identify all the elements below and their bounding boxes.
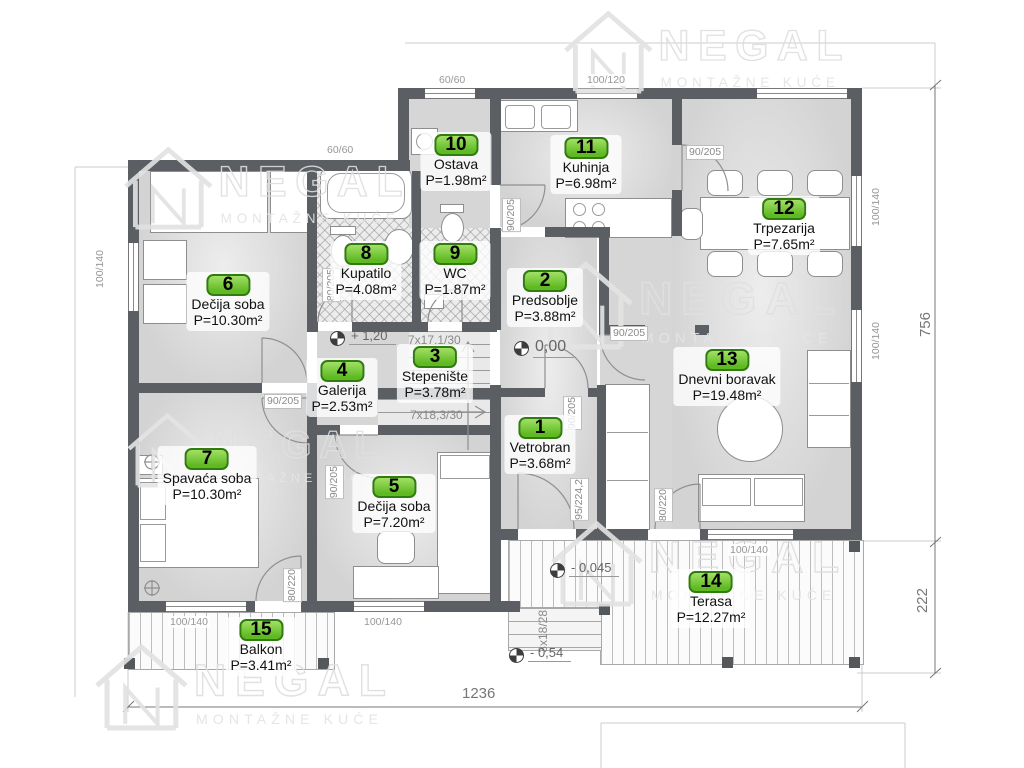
room-badge: 9 bbox=[433, 243, 477, 265]
room-area: P=12.27m² bbox=[677, 609, 746, 625]
room-badge: 1 bbox=[518, 417, 562, 439]
room-tag-predsoblje: 2 Predsoblje P=3.88m² bbox=[507, 268, 583, 327]
room-area: P=3.68m² bbox=[509, 455, 570, 471]
sink-basin bbox=[505, 105, 535, 129]
deck-post bbox=[849, 541, 860, 552]
window bbox=[128, 243, 139, 311]
closet-shelf bbox=[607, 432, 648, 433]
watermark-tagline: MONTAŽNE KUĆE bbox=[196, 711, 383, 727]
door-size-label: 90/205 bbox=[610, 326, 648, 341]
room-area: P=7.65m² bbox=[753, 236, 815, 252]
stove-burner bbox=[592, 203, 605, 216]
wardrobe bbox=[270, 171, 310, 233]
level-value: - 0,045 bbox=[569, 560, 619, 577]
room-tag-kuhinja: 11 Kuhinja P=6.98m² bbox=[550, 135, 621, 194]
door-size-label: 90/205 bbox=[325, 465, 344, 499]
level-value: - 0,54 bbox=[528, 645, 571, 662]
kitchen-sink-counter bbox=[498, 100, 578, 132]
level-symbol-icon bbox=[509, 648, 524, 663]
room-name: Galerija bbox=[311, 382, 372, 398]
room-area: P=3.78m² bbox=[402, 384, 468, 400]
tv-cabinet bbox=[807, 350, 851, 448]
dining-chair bbox=[707, 170, 743, 196]
room-tag-dnevni-boravak: 13 Dnevni boravak P=19.48m² bbox=[673, 347, 780, 406]
room-name: Predsoblje bbox=[512, 292, 578, 308]
wall bbox=[462, 322, 497, 332]
toilet bbox=[440, 204, 464, 213]
level-symbol-icon bbox=[514, 341, 529, 356]
window bbox=[757, 88, 847, 99]
wall bbox=[599, 235, 609, 330]
room-badge: 10 bbox=[434, 134, 478, 156]
window-size-label: 100/140 bbox=[868, 188, 884, 226]
sofa bbox=[698, 474, 805, 522]
room-name: Terasa bbox=[677, 593, 746, 609]
room-badge: 11 bbox=[564, 137, 608, 159]
pillow bbox=[440, 455, 490, 479]
window bbox=[577, 88, 637, 99]
level-symbol-icon bbox=[330, 331, 345, 346]
window bbox=[354, 601, 424, 612]
window-size-label: 100/140 bbox=[362, 616, 404, 628]
bed bbox=[437, 452, 493, 594]
room-badge: 14 bbox=[689, 571, 733, 593]
level-value: 0,00 bbox=[533, 338, 574, 358]
wall bbox=[600, 529, 648, 540]
dining-chair bbox=[680, 208, 703, 240]
room-name: Kuhinja bbox=[555, 159, 616, 175]
window bbox=[851, 310, 862, 382]
room-tag-terasa: 14 Terasa P=12.27m² bbox=[672, 569, 751, 628]
window bbox=[425, 88, 475, 99]
room-name: Kupatilo bbox=[335, 265, 396, 281]
tv-cabinet-shelf bbox=[809, 383, 849, 384]
room-tag-galerija: 4 Galerija P=2.53m² bbox=[306, 358, 377, 417]
closet bbox=[605, 384, 650, 530]
wall bbox=[490, 228, 501, 330]
dining-chair bbox=[757, 170, 793, 196]
room-badge: 6 bbox=[206, 274, 250, 296]
room-badge: 4 bbox=[320, 360, 364, 382]
wall bbox=[317, 425, 340, 435]
wall bbox=[695, 325, 709, 335]
room-name: Spavaća soba bbox=[163, 470, 252, 486]
wall bbox=[597, 385, 606, 540]
level-marker-terrace: - 0,045 bbox=[550, 560, 619, 578]
sink-basin bbox=[541, 105, 571, 129]
closet-shelf bbox=[607, 480, 648, 481]
cabinet bbox=[143, 284, 187, 324]
room-name: Trpezarija bbox=[753, 220, 815, 236]
door-size-label: 90/205 bbox=[686, 145, 724, 160]
room-name: Dečija soba bbox=[357, 498, 430, 514]
sofa-cushion bbox=[754, 478, 803, 506]
dimension-label-side: 756 bbox=[917, 312, 934, 337]
room-tag-spavaca-soba: 7 Spavaća soba P=10.30m² bbox=[158, 446, 257, 505]
room-badge: 3 bbox=[413, 346, 457, 368]
deck-post bbox=[124, 658, 135, 669]
desk bbox=[353, 566, 439, 599]
wall bbox=[490, 88, 501, 185]
window bbox=[708, 529, 793, 540]
window-size-label: 100/140 bbox=[92, 250, 108, 288]
room-area: P=1.87m² bbox=[424, 281, 485, 297]
room-area: P=2.53m² bbox=[311, 398, 372, 414]
wall bbox=[500, 388, 545, 397]
floor-plan-canvas: NEGAL MONTAŽNE KUĆE NEGAL MONTAŽNE KUĆE … bbox=[0, 0, 1024, 768]
room-name: Dečija soba bbox=[191, 296, 264, 312]
tv-cabinet-shelf bbox=[809, 415, 849, 416]
wall bbox=[128, 383, 262, 393]
window-size-label: 100/140 bbox=[868, 322, 884, 360]
room-tag-balkon: 15 Balkon P=3.41m² bbox=[225, 617, 296, 676]
window-size-label: 100/120 bbox=[585, 74, 627, 86]
wall bbox=[490, 385, 501, 612]
dining-chair bbox=[807, 170, 843, 196]
level-marker-upper: + 1,20 bbox=[330, 328, 396, 346]
room-tag-stepeniste: 3 Stepenište P=3.78m² bbox=[397, 344, 473, 403]
room-name: Balkon bbox=[230, 641, 291, 657]
door-size-label: 90/205 bbox=[502, 198, 521, 232]
room-area: P=10.30m² bbox=[163, 486, 252, 502]
deck-post bbox=[318, 658, 329, 669]
level-marker-yard: - 0,54 bbox=[509, 645, 571, 663]
room-area: P=1.98m² bbox=[425, 172, 486, 188]
wall bbox=[307, 160, 317, 331]
room-area: P=10.30m² bbox=[191, 312, 264, 328]
deck-post bbox=[849, 657, 860, 668]
room-name: Ostava bbox=[425, 156, 486, 172]
window-size-label: 60/60 bbox=[325, 144, 355, 156]
room-badge: 5 bbox=[372, 476, 416, 498]
wall bbox=[307, 322, 318, 332]
door-size-label: 80/220 bbox=[283, 568, 302, 602]
room-tag-vetrobran: 1 Vetrobran P=3.68m² bbox=[504, 415, 575, 474]
chair bbox=[377, 531, 415, 564]
bed bbox=[150, 171, 268, 233]
room-name: Vetrobran bbox=[509, 439, 570, 455]
room-tag-decija-soba-5: 5 Dečija soba P=7.20m² bbox=[352, 474, 435, 533]
wall bbox=[672, 99, 682, 145]
room-name: Stepenište bbox=[402, 368, 468, 384]
room-badge: 13 bbox=[705, 349, 749, 371]
level-marker-ground: 0,00 bbox=[514, 338, 574, 358]
dimension-label-terrace: 222 bbox=[914, 588, 931, 613]
room-area: P=4.08m² bbox=[335, 281, 396, 297]
wall bbox=[500, 529, 518, 540]
wall bbox=[378, 425, 500, 435]
sofa-cushion bbox=[702, 478, 751, 506]
wall bbox=[128, 160, 410, 171]
wall bbox=[672, 190, 682, 236]
level-symbol-icon bbox=[550, 563, 565, 578]
toilet bbox=[330, 226, 356, 235]
door-size-label: 95/224,2 bbox=[570, 478, 589, 521]
room-area: P=19.48m² bbox=[678, 387, 775, 403]
room-badge: 8 bbox=[344, 243, 388, 265]
bathtub bbox=[320, 167, 412, 219]
bathtub-basin bbox=[327, 173, 405, 213]
room-badge: 12 bbox=[762, 198, 806, 220]
toilet-bowl bbox=[441, 213, 464, 243]
window-size-label: 100/140 bbox=[168, 616, 210, 628]
room-tag-wc: 9 WC P=1.87m² bbox=[419, 241, 490, 300]
window-size-label: 100/140 bbox=[728, 544, 770, 556]
cabinet bbox=[143, 240, 187, 280]
room-area: P=6.98m² bbox=[555, 175, 616, 191]
wall bbox=[398, 88, 409, 171]
stove-burner bbox=[573, 203, 586, 216]
room-name: WC bbox=[424, 265, 485, 281]
watermark-brand: NEGAL bbox=[659, 22, 852, 70]
wall bbox=[588, 388, 597, 397]
deck-post bbox=[722, 657, 733, 668]
room-tag-kupatilo: 8 Kupatilo P=4.08m² bbox=[330, 241, 401, 300]
room-area: P=3.41m² bbox=[230, 657, 291, 673]
door-size-label: 80/220 bbox=[654, 488, 673, 522]
dimension-label-front: 1236 bbox=[462, 685, 495, 702]
room-floor-trpezarija-dnevni bbox=[672, 99, 851, 529]
window bbox=[166, 601, 246, 612]
room-badge: 2 bbox=[523, 270, 567, 292]
wall bbox=[307, 383, 317, 612]
deck-post bbox=[599, 604, 610, 615]
room-area: P=3.88m² bbox=[512, 308, 578, 324]
pillow bbox=[140, 524, 166, 562]
level-value: + 1,20 bbox=[349, 328, 396, 345]
room-tag-trpezarija: 12 Trpezarija P=7.65m² bbox=[748, 196, 820, 255]
dining-chair bbox=[707, 251, 743, 277]
window bbox=[851, 176, 862, 246]
room-badge: 7 bbox=[185, 448, 229, 470]
window-size-label: 60/60 bbox=[437, 74, 467, 86]
room-badge: 15 bbox=[239, 619, 283, 641]
room-tag-decija-soba-6: 6 Dečija soba P=10.30m² bbox=[186, 272, 269, 331]
room-name: Dnevni boravak bbox=[678, 371, 775, 387]
room-tag-ostava: 10 Ostava P=1.98m² bbox=[420, 132, 491, 191]
stair-flight-label: 7x18,3/30 bbox=[410, 408, 463, 422]
door-size-label: 90/205 bbox=[264, 394, 302, 409]
room-area: P=7.20m² bbox=[357, 514, 430, 530]
